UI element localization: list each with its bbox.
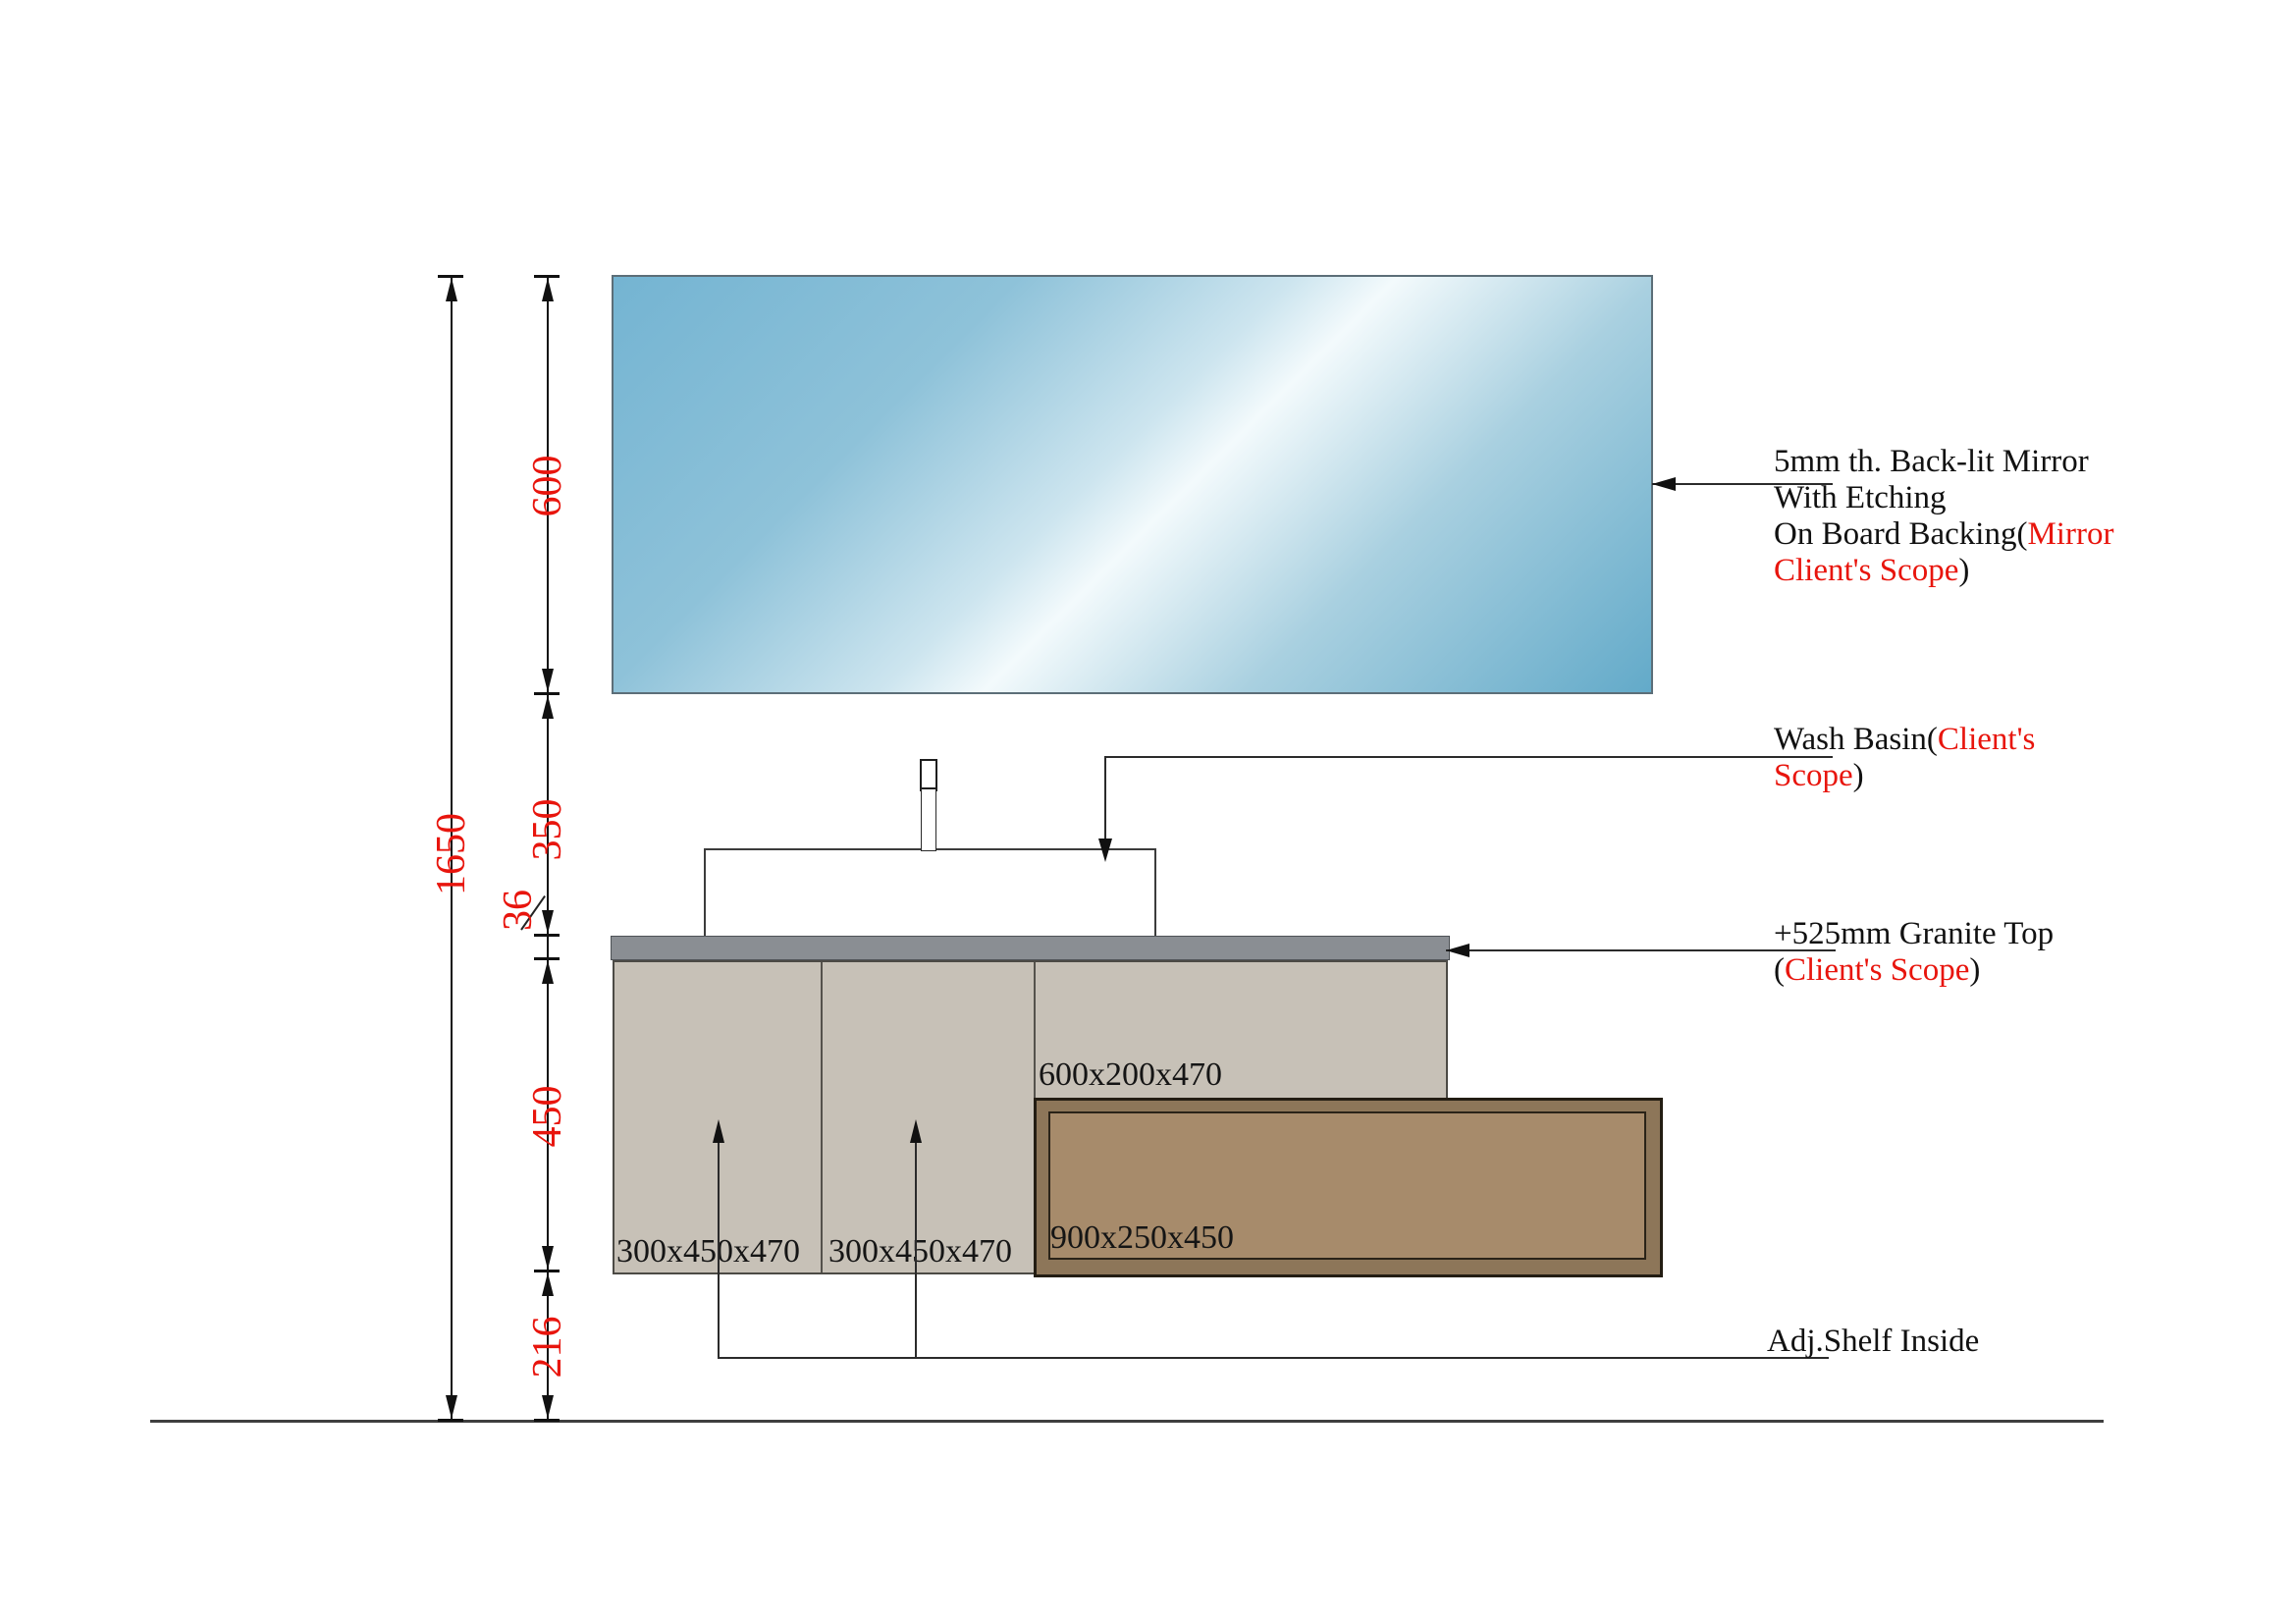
tick-granite-top — [534, 934, 560, 937]
arrow-down-icon — [542, 910, 554, 934]
label-upper-right-unit: 600x200x470 — [1039, 1058, 1222, 1092]
arrow-up-icon — [542, 278, 554, 301]
tick-floor-right — [534, 1419, 560, 1422]
dim-total-height: 1650 — [431, 813, 472, 895]
dim-mirror-to-counter: 350 — [527, 799, 568, 861]
wash-basin-annotation: Wash Basin(Client's Scope) — [1774, 722, 2035, 794]
arrow-down-icon — [542, 669, 554, 692]
basin-note-line1-red: Client's — [1938, 722, 2035, 757]
basin-note-line1: Wash Basin( — [1774, 722, 1938, 757]
basin-leader-line — [1105, 756, 1833, 758]
mirror-note-line4-red: Client's Scope — [1774, 553, 1958, 588]
dim-bottom-clearance: 216 — [527, 1317, 568, 1379]
elevation-drawing: 300x450x470 300x450x470 600x200x470 900x… — [0, 0, 2296, 1623]
backlit-mirror — [612, 275, 1653, 694]
granite-note-line1: +525mm Granite Top — [1774, 916, 2054, 951]
mirror-annotation: 5mm th. Back-lit Mirror With Etching On … — [1774, 444, 2113, 589]
basin-leader-drop — [1104, 756, 1106, 840]
dim-mirror-height: 600 — [527, 456, 568, 517]
granite-note-paren-close: ) — [1969, 952, 1980, 988]
arrow-up-icon — [910, 1119, 922, 1143]
label-drawer-box: 900x250x450 — [1050, 1221, 1234, 1255]
mirror-note-line1: 5mm th. Back-lit Mirror — [1774, 444, 2089, 479]
arrow-down-icon — [542, 1246, 554, 1270]
basin-note-line2-red: Scope — [1774, 758, 1853, 793]
shelf-leader-horizontal — [718, 1357, 1829, 1359]
mirror-note-line3: On Board Backing( — [1774, 516, 2027, 552]
shelf-note-line1: Adj.Shelf Inside — [1767, 1324, 1979, 1359]
mirror-note-line4: ) — [1958, 553, 1969, 588]
basin-note-line2: ) — [1853, 758, 1864, 793]
arrow-left-icon — [1652, 477, 1676, 491]
granite-note-paren-open: ( — [1774, 952, 1785, 988]
arrow-down-icon — [1098, 839, 1112, 862]
mirror-note-line3-red: Mirror — [2027, 516, 2113, 552]
faucet-stem — [921, 787, 936, 851]
arrow-down-icon — [446, 1395, 457, 1419]
arrow-up-icon — [542, 695, 554, 719]
label-left-unit: 300x450x470 — [616, 1235, 800, 1269]
granite-note-line2-red: Client's Scope — [1785, 952, 1969, 988]
arrow-left-icon — [1446, 944, 1469, 957]
cabinet-divider-left — [821, 962, 823, 1272]
arrow-up-icon — [446, 278, 457, 301]
shelf-leader-right — [915, 1141, 917, 1359]
shelf-leader-left — [718, 1141, 720, 1359]
wash-basin — [704, 848, 1156, 938]
label-middle-unit: 300x450x470 — [828, 1235, 1012, 1269]
dim-counter-thickness: 36 — [498, 890, 539, 931]
granite-annotation: +525mm Granite Top (Client's Scope) — [1774, 916, 2054, 989]
mirror-note-line2: With Etching — [1774, 480, 1947, 515]
arrow-up-icon — [713, 1119, 724, 1143]
shelf-annotation: Adj.Shelf Inside — [1767, 1324, 1979, 1360]
granite-countertop — [611, 936, 1450, 960]
arrow-up-icon — [542, 960, 554, 984]
dim-cabinet-height: 450 — [527, 1086, 568, 1148]
arrow-up-icon — [542, 1272, 554, 1296]
tick-floor-left — [438, 1419, 463, 1422]
arrow-down-icon — [542, 1395, 554, 1419]
